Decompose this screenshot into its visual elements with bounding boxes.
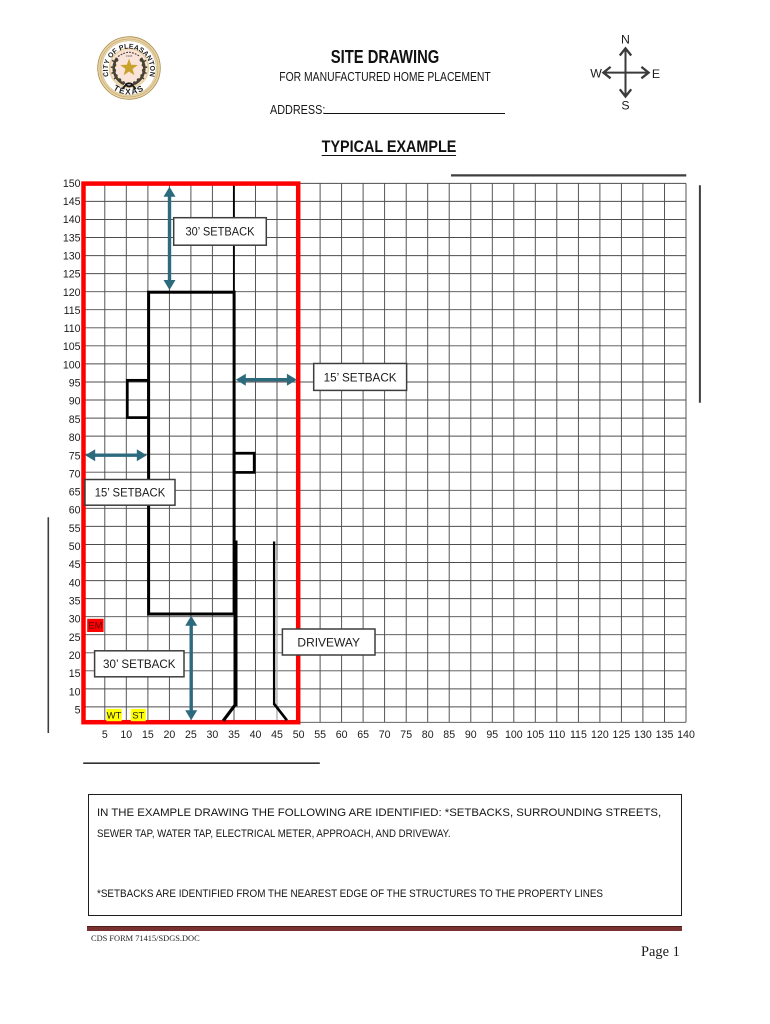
svg-text:145: 145 <box>63 196 81 208</box>
svg-text:60: 60 <box>336 729 348 741</box>
svg-text:50: 50 <box>69 541 81 553</box>
svg-text:95: 95 <box>486 729 498 741</box>
svg-text:125: 125 <box>63 269 81 281</box>
svg-text:45: 45 <box>271 729 283 741</box>
svg-text:80: 80 <box>69 432 81 444</box>
svg-text:10: 10 <box>120 729 132 741</box>
svg-text:75: 75 <box>69 450 81 462</box>
svg-text:50: 50 <box>293 729 305 741</box>
svg-text:15: 15 <box>69 668 81 680</box>
svg-text:90: 90 <box>69 396 81 408</box>
svg-text:85: 85 <box>69 414 81 426</box>
svg-text:WT: WT <box>107 710 122 721</box>
svg-text:70: 70 <box>69 468 81 480</box>
svg-text:110: 110 <box>548 729 565 741</box>
svg-text:25: 25 <box>185 729 197 741</box>
svg-text:100: 100 <box>63 359 81 371</box>
svg-text:45: 45 <box>69 559 81 571</box>
svg-text:65: 65 <box>69 487 81 499</box>
svg-text:90: 90 <box>465 729 477 741</box>
svg-text:15’ SETBACK: 15’ SETBACK <box>95 487 166 500</box>
svg-text:25: 25 <box>69 632 81 644</box>
svg-text:95: 95 <box>69 378 81 390</box>
svg-text:110: 110 <box>64 323 81 335</box>
svg-text:30’ SETBACK: 30’ SETBACK <box>103 658 176 671</box>
svg-text:55: 55 <box>314 729 326 741</box>
svg-text:15’ SETBACK: 15’ SETBACK <box>324 371 397 384</box>
svg-text:115: 115 <box>570 729 587 741</box>
svg-text:125: 125 <box>613 729 631 741</box>
svg-text:ST: ST <box>132 710 144 721</box>
svg-text:105: 105 <box>63 341 81 353</box>
svg-text:130: 130 <box>634 729 652 741</box>
svg-text:30’ SETBACK: 30’ SETBACK <box>186 226 255 239</box>
svg-text:DRIVEWAY: DRIVEWAY <box>297 636 360 649</box>
svg-text:10: 10 <box>69 686 81 698</box>
svg-text:40: 40 <box>250 729 262 741</box>
svg-text:EM: EM <box>88 621 102 632</box>
svg-text:140: 140 <box>677 729 695 741</box>
svg-text:120: 120 <box>591 729 609 741</box>
svg-text:140: 140 <box>63 214 81 226</box>
svg-text:130: 130 <box>63 251 81 263</box>
svg-text:115: 115 <box>64 305 81 317</box>
svg-text:105: 105 <box>526 729 544 741</box>
svg-text:60: 60 <box>69 505 81 517</box>
svg-text:5: 5 <box>102 729 108 741</box>
svg-text:35: 35 <box>69 596 81 608</box>
svg-text:15: 15 <box>142 729 154 741</box>
svg-text:70: 70 <box>379 729 391 741</box>
svg-text:20: 20 <box>69 650 81 662</box>
svg-text:35: 35 <box>228 729 240 741</box>
svg-text:150: 150 <box>63 178 81 190</box>
svg-text:85: 85 <box>443 729 455 741</box>
svg-text:55: 55 <box>69 523 81 535</box>
svg-text:75: 75 <box>400 729 412 741</box>
svg-text:135: 135 <box>656 729 674 741</box>
svg-text:30: 30 <box>69 614 81 626</box>
svg-text:20: 20 <box>164 729 176 741</box>
svg-text:30: 30 <box>207 729 219 741</box>
svg-text:120: 120 <box>63 287 81 299</box>
svg-text:40: 40 <box>69 577 81 589</box>
svg-text:5: 5 <box>75 704 81 716</box>
svg-text:65: 65 <box>357 729 369 741</box>
svg-text:135: 135 <box>63 232 81 244</box>
svg-text:80: 80 <box>422 729 434 741</box>
svg-text:100: 100 <box>505 729 523 741</box>
